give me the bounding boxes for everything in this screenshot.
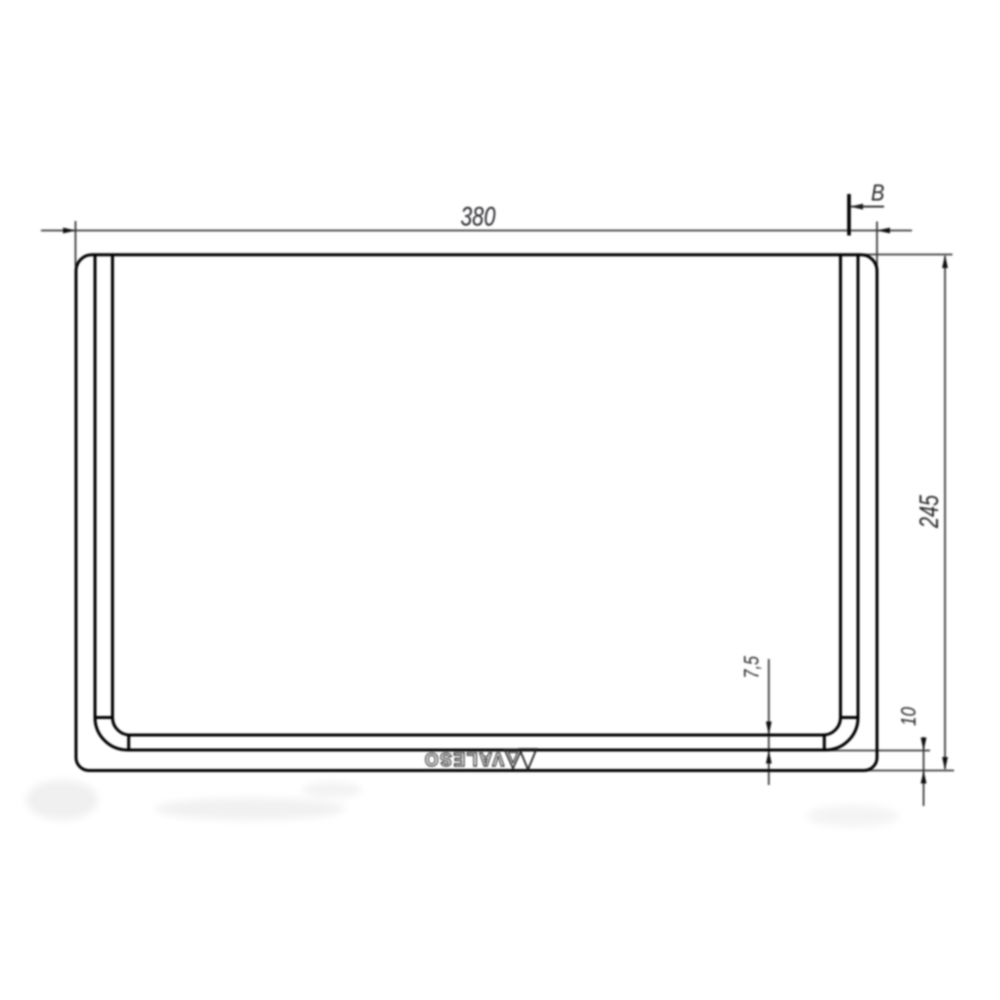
svg-text:245: 245: [914, 494, 944, 528]
svg-text:10: 10: [898, 707, 921, 726]
svg-text:7,5: 7,5: [741, 656, 764, 679]
svg-text:VALESO: VALESO: [423, 749, 504, 770]
svg-text:B: B: [871, 180, 885, 206]
svg-text:380: 380: [461, 202, 496, 232]
